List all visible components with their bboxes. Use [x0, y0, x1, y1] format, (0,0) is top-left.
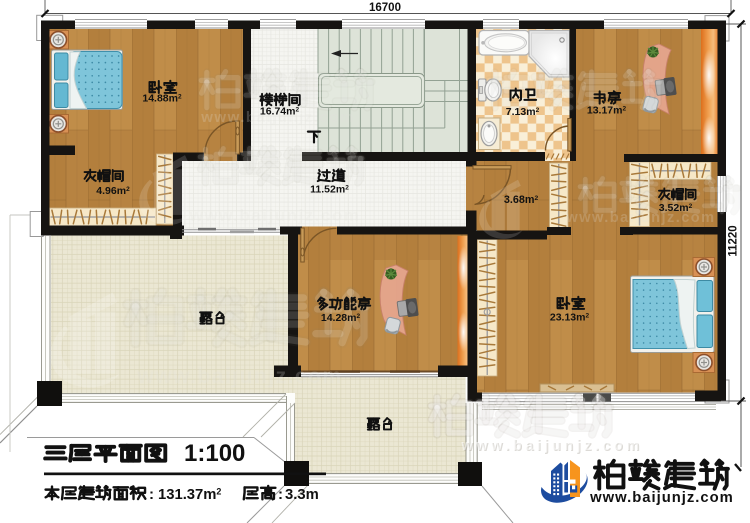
- svg-text:www.baijunjz.com: www.baijunjz.com: [565, 210, 715, 226]
- svg-text:14.88m2: 14.88m2: [142, 93, 182, 105]
- svg-text:www.baijunjz.com: www.baijunjz.com: [460, 438, 642, 454]
- svg-text::: :: [149, 486, 154, 503]
- svg-text:11.52m2: 11.52m2: [310, 184, 349, 196]
- svg-text:16700: 16700: [369, 2, 401, 14]
- svg-text:www.baijunjz.com: www.baijunjz.com: [589, 490, 734, 506]
- svg-text:23.13m2: 23.13m2: [550, 312, 590, 324]
- svg-text:131.37m2: 131.37m2: [158, 487, 221, 504]
- svg-text:www.baijunjz.com: www.baijunjz.com: [136, 365, 342, 388]
- svg-text::: :: [278, 486, 283, 503]
- svg-text:11220: 11220: [728, 225, 740, 256]
- svg-text:3.52m2: 3.52m2: [659, 202, 693, 214]
- svg-text:16.74m2: 16.74m2: [260, 106, 300, 118]
- svg-text:3.68m2: 3.68m2: [504, 194, 539, 206]
- svg-text:www.baijunjz.com: www.baijunjz.com: [189, 206, 361, 225]
- svg-text:7.13m2: 7.13m2: [506, 106, 540, 118]
- svg-text:4.96m2: 4.96m2: [96, 185, 130, 197]
- svg-text:3.3m: 3.3m: [285, 487, 319, 503]
- svg-text:13.17m2: 13.17m2: [587, 105, 627, 117]
- svg-text:14.28m2: 14.28m2: [321, 312, 361, 324]
- svg-text:1:100: 1:100: [184, 440, 245, 467]
